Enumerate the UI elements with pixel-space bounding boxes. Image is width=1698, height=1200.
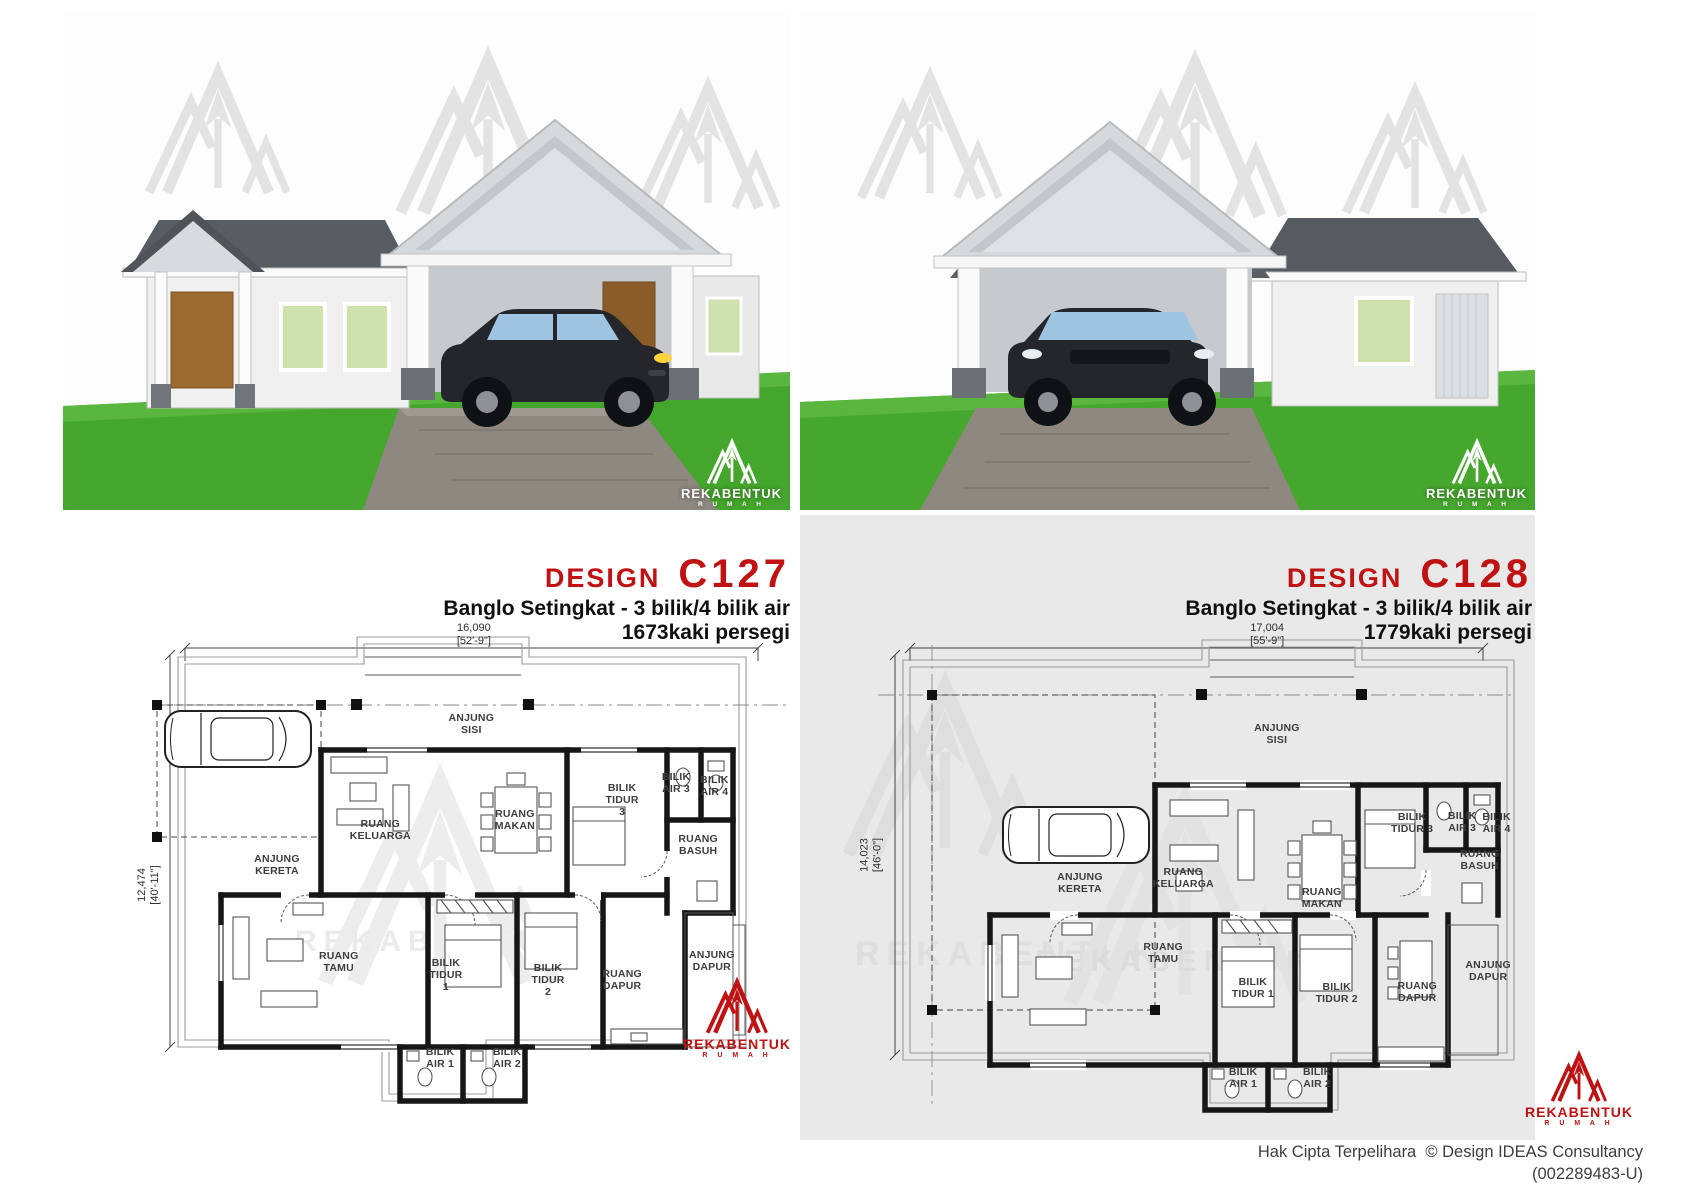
- brand-name: REKABENTUK: [681, 486, 782, 501]
- room-label: BILIK TIDUR 3: [606, 782, 639, 818]
- copyright-line1: Hak Cipta Terpelihara © Design IDEAS Con…: [1258, 1141, 1643, 1163]
- house-render-c127: REKABENTUK R U M A H: [63, 10, 790, 510]
- room-label: BILIK AIR 2: [1303, 1066, 1331, 1090]
- rekabentuk-mark-icon: [1451, 434, 1503, 486]
- brand-sub: R U M A H: [1520, 1120, 1638, 1127]
- room-label: ANJUNG SISI: [449, 712, 495, 736]
- rekabentuk-logo-red: REKABENTUK R U M A H: [682, 972, 792, 1059]
- room-label: RUANG KELUARGA: [1153, 866, 1214, 890]
- dimension-height: 12,474[40'-11"]: [136, 865, 161, 904]
- room-label: ANJUNG KERETA: [1057, 871, 1103, 895]
- rekabentuk-logo: REKABENTUK R U M A H: [1426, 434, 1527, 508]
- house-illustration-c128: [800, 10, 1535, 510]
- room-label: BILIK AIR 1: [1229, 1066, 1257, 1090]
- room-label: BILIK AIR 3: [662, 771, 690, 795]
- rekabentuk-mark-icon: [705, 972, 769, 1036]
- brand-name: REKABENTUK: [682, 1036, 792, 1052]
- design-word: DESIGN: [545, 563, 661, 594]
- floor-plan-c128: REKABENTUK: [870, 595, 1520, 1115]
- room-label: RUANG DAPUR: [602, 968, 642, 992]
- room-label: BILIK TIDUR 2: [531, 962, 564, 998]
- brand-sub: R U M A H: [682, 1052, 792, 1059]
- design-title-c127: DESIGN C127 Banglo Setingkat - 3 bilik/4…: [350, 556, 790, 645]
- room-labels-c128: ANJUNG SISIANJUNG KERETARUANG KELUARGARU…: [870, 595, 1520, 1115]
- design-code: C127: [678, 556, 790, 592]
- room-label: BILIK TIDUR 1: [429, 957, 462, 993]
- design-title-c128: DESIGN C128 Banglo Setingkat - 3 bilik/4…: [1092, 556, 1532, 645]
- design-area: 1779kaki persegi: [1092, 621, 1532, 645]
- room-label: RUANG BASUH: [1460, 848, 1500, 872]
- dimension-height: 14,023[46'-0"]: [858, 838, 883, 872]
- room-label: RUANG KELUARGA: [350, 818, 411, 842]
- brand-sub: R U M A H: [681, 501, 782, 508]
- design-heading: DESIGN C128: [1092, 556, 1532, 594]
- design-subtitle: Banglo Setingkat - 3 bilik/4 bilik air: [1092, 597, 1532, 621]
- room-label: RUANG BASUH: [678, 833, 718, 857]
- room-label: BILIK AIR 1: [426, 1046, 454, 1070]
- room-label: BILIK TIDUR 1: [1232, 976, 1274, 1000]
- room-label: RUANG DAPUR: [1398, 980, 1438, 1004]
- room-label: BILIK AIR 2: [493, 1046, 521, 1070]
- room-label: ANJUNG SISI: [1254, 722, 1300, 746]
- room-label: ANJUNG DAPUR: [1465, 959, 1511, 983]
- room-label: RUANG MAKAN: [495, 808, 535, 832]
- room-label: RUANG MAKAN: [1302, 886, 1342, 910]
- house-render-c128: REKABENTUK R U M A H: [800, 10, 1535, 510]
- rekabentuk-mark-icon: [1550, 1046, 1608, 1104]
- brand-name: REKABENTUK: [1426, 486, 1527, 501]
- room-label: ANJUNG KERETA: [254, 853, 300, 877]
- brand-name: REKABENTUK: [1520, 1104, 1638, 1120]
- rekabentuk-logo: REKABENTUK R U M A H: [681, 434, 782, 508]
- copyright-line2: (002289483-U): [1258, 1163, 1643, 1185]
- room-label: RUANG TAMU: [319, 950, 359, 974]
- design-area: 1673kaki persegi: [350, 621, 790, 645]
- room-label: BILIK AIR 3: [1448, 810, 1476, 834]
- brand-sub: R U M A H: [1426, 501, 1527, 508]
- design-heading: DESIGN C127: [350, 556, 790, 594]
- room-label: RUANG TAMU: [1143, 941, 1183, 965]
- room-label: ANJUNG DAPUR: [689, 949, 735, 973]
- room-label: BILIK TIDUR 3: [1391, 811, 1433, 835]
- copyright-text: Hak Cipta Terpelihara © Design IDEAS Con…: [1258, 1141, 1643, 1186]
- rekabentuk-logo-red: REKABENTUK R U M A H: [1520, 1046, 1638, 1127]
- rekabentuk-mark-icon: [706, 434, 758, 486]
- design-subtitle: Banglo Setingkat - 3 bilik/4 bilik air: [350, 597, 790, 621]
- design-word: DESIGN: [1287, 563, 1403, 594]
- room-label: BILIK TIDUR 2: [1316, 981, 1358, 1005]
- room-label: BILIK AIR 4: [700, 774, 728, 798]
- room-label: BILIK AIR 4: [1482, 811, 1510, 835]
- brochure-page: REKABENTUK: [0, 0, 1698, 1200]
- design-code: C128: [1420, 556, 1532, 592]
